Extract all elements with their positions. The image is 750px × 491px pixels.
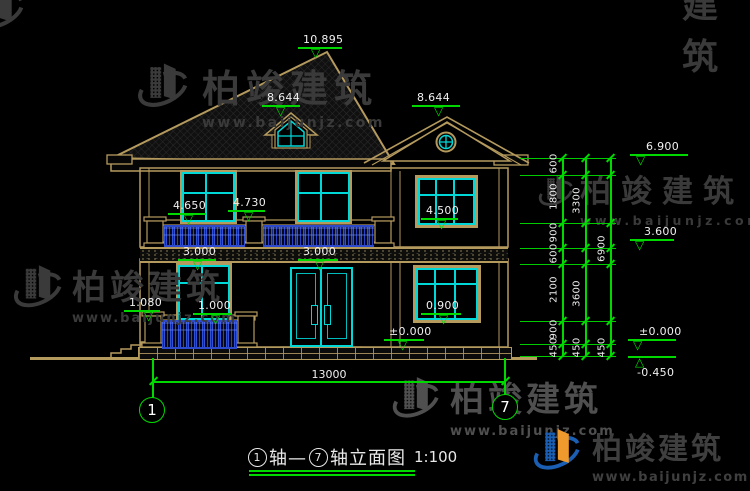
axis-number: 1 bbox=[147, 401, 157, 419]
watermark-fragment-topleft bbox=[0, 0, 28, 38]
title-axis-7: 7 bbox=[309, 448, 328, 467]
dim-value: 450 bbox=[597, 331, 608, 365]
elev-1000: 1.000 ▽ bbox=[193, 300, 231, 324]
elev-right-site: △ -0.450 bbox=[628, 355, 676, 379]
elev-right-6900: 6.900 ▽ bbox=[630, 141, 688, 165]
drawing-title: 1 轴— 7 轴立面图 1:100 bbox=[246, 444, 457, 470]
dim-value: 1800 bbox=[549, 180, 560, 214]
title-name: 轴立面图 bbox=[330, 444, 406, 470]
elev-1080: 1.080 ▽ bbox=[124, 297, 162, 321]
watermark-fragment-topright: 建筑 bbox=[682, 0, 750, 80]
dim-line-col1 bbox=[562, 158, 564, 356]
dim-value: 600 bbox=[549, 237, 560, 271]
porch-balusters bbox=[162, 320, 237, 349]
title-underline-1 bbox=[249, 470, 415, 472]
total-width-value: 13000 bbox=[305, 368, 353, 381]
window-2f-center bbox=[297, 172, 350, 222]
axis-bubble-1: 1 bbox=[139, 397, 165, 423]
dim-value: 450 bbox=[549, 331, 560, 365]
elev-ground-door: ±0.000 ▽ bbox=[384, 326, 432, 350]
axis-bubble-7: 7 bbox=[492, 394, 518, 420]
door-divider bbox=[320, 269, 322, 345]
door-handle-right bbox=[324, 305, 331, 325]
axis7-extension-line bbox=[504, 358, 506, 395]
elev-4650: 4.650 ▽ bbox=[168, 200, 206, 224]
dim-value: 6900 bbox=[597, 232, 608, 266]
axis-number: 7 bbox=[500, 398, 510, 416]
door-handle-left bbox=[311, 305, 318, 325]
elev-4730: 4.730 ▽ bbox=[228, 197, 266, 221]
transom bbox=[184, 192, 233, 194]
dim-value: 600 bbox=[549, 147, 560, 181]
title-underline-2 bbox=[249, 474, 415, 476]
elev-3000-center: 3.000 ▽ bbox=[298, 246, 338, 270]
elev-dormer: 8.644 ▽ bbox=[262, 92, 300, 116]
total-width-dim-line bbox=[153, 381, 505, 383]
entry-double-door bbox=[290, 267, 353, 347]
dim-line-col2 bbox=[585, 158, 587, 356]
balcony-balusters-left bbox=[164, 225, 245, 247]
title-segment: 轴— bbox=[269, 444, 307, 470]
dim-value: 3300 bbox=[572, 184, 583, 218]
dim-value: 450 bbox=[572, 331, 583, 365]
elev-gable: 8.644 ▽ bbox=[412, 92, 460, 116]
eave-cornice-left bbox=[107, 155, 132, 164]
elev-3000-left: 3.000 ▽ bbox=[178, 246, 216, 270]
dim-value: 2100 bbox=[549, 273, 560, 307]
elev-4500: 4.500 ▽ bbox=[421, 205, 459, 229]
elev-right-ground: ±0.000 ▽ bbox=[628, 326, 682, 350]
elev-0900: 0.900 ▽ bbox=[421, 300, 461, 324]
elev-value: 10.895 bbox=[298, 34, 343, 46]
title-axis-1: 1 bbox=[248, 448, 267, 467]
main-roof bbox=[112, 52, 394, 164]
eave-band bbox=[111, 159, 391, 171]
dim-value: 3600 bbox=[572, 277, 583, 311]
elev-ridge: 10.895 ▽ bbox=[298, 34, 343, 58]
cad-elevation-drawing: 柏竣建筑 www.baijunjz.com 柏竣建筑 www.baijunjz.… bbox=[0, 0, 750, 491]
elev-right-3600: 3.600 ▽ bbox=[630, 226, 677, 250]
title-scale: 1:100 bbox=[414, 448, 457, 466]
balcony-balusters-right bbox=[263, 225, 374, 247]
dim-line-col3 bbox=[610, 158, 612, 356]
